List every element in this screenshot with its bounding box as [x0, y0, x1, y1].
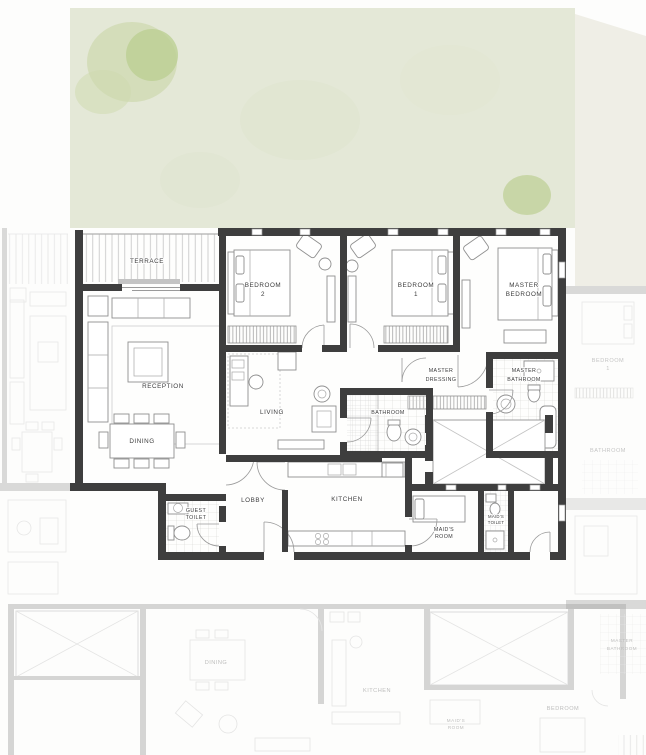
furniture-outline — [30, 292, 66, 306]
wall-segment — [140, 604, 146, 755]
wall-segment — [340, 388, 347, 418]
wall-segment — [550, 552, 566, 560]
toilet — [387, 423, 401, 441]
neighbor-room-label: 1 — [606, 366, 610, 372]
wall-segment — [340, 388, 433, 395]
wall-segment — [162, 494, 226, 501]
tiled-floor — [600, 614, 646, 674]
sofa — [112, 298, 190, 318]
neighbor-unit-right: BEDROOM 1 BATHROOM — [566, 286, 646, 609]
dining-chair — [114, 459, 129, 468]
floor-plan-svg: BEDROOM 1 BATHROOM DINING — [0, 0, 646, 755]
wall-segment — [486, 352, 493, 388]
room-guest-toilet: GUEST TOILET — [166, 501, 219, 552]
garden-patch — [160, 152, 240, 208]
furniture-outline — [584, 526, 608, 556]
wall-segment — [226, 455, 382, 462]
window — [300, 229, 310, 235]
side-table — [278, 352, 296, 370]
pillow — [543, 254, 551, 274]
window — [540, 229, 550, 235]
chair-outline — [196, 630, 209, 638]
wall-segment — [545, 415, 553, 433]
wardrobe — [228, 326, 296, 343]
wall-segment — [219, 506, 226, 522]
chair-outline — [215, 630, 228, 638]
room-label-living: LIVING — [260, 409, 284, 416]
pillow-outline — [624, 324, 632, 338]
table-outline — [22, 432, 52, 472]
sink — [486, 494, 496, 502]
neighbor-room-label: BATHROOM — [590, 448, 626, 454]
room-label-bathroom: BATHROOM — [371, 410, 404, 416]
wall-segment — [425, 445, 433, 461]
main-unit: TERRACE RECEPTION DININ — [70, 228, 566, 560]
shower-floor — [347, 395, 378, 451]
window — [252, 229, 262, 235]
bed-headboard — [228, 252, 234, 314]
room-label-guest-toilet: TOILET — [186, 515, 207, 521]
neighbor-room-label: MAID'S — [447, 718, 465, 723]
window — [530, 485, 540, 490]
counter-outline — [332, 712, 400, 724]
chair-outline — [26, 422, 38, 430]
wall-segment — [219, 546, 226, 560]
bed-outline — [540, 718, 585, 752]
wardrobe-outline — [575, 388, 633, 398]
room-label-reception: RECEPTION — [142, 383, 184, 390]
neighbor-unit-bottom: DINING KITCHEN MAID'S ROOM BEDROOM MASTE… — [8, 604, 646, 755]
fixture-outline — [330, 612, 344, 622]
wall-segment — [566, 498, 646, 510]
side-table — [319, 258, 331, 270]
window — [496, 229, 506, 235]
room-bathroom: BATHROOM — [347, 395, 426, 451]
neighbor-room-label: BEDROOM — [547, 706, 579, 712]
wall-segment — [424, 609, 430, 689]
wall-segment — [488, 352, 566, 359]
tv-cabinet — [312, 406, 336, 432]
garden-patch — [240, 80, 360, 160]
window — [438, 229, 448, 235]
dining-chair — [134, 414, 149, 423]
fridge — [382, 463, 403, 477]
wall-segment — [8, 604, 14, 755]
pillow — [438, 284, 446, 302]
room-label-maids-toilet: TOILET — [488, 520, 505, 525]
dining-chair — [114, 414, 129, 423]
floor-plan-canvas: BEDROOM 1 BATHROOM DINING — [0, 0, 646, 755]
dining-chair — [134, 459, 149, 468]
wall-segment — [282, 490, 288, 552]
fixture-outline — [350, 636, 362, 648]
room-label-master-bathroom: MASTER — [512, 368, 536, 374]
dining-chair — [99, 432, 108, 448]
wall-segment — [219, 228, 226, 454]
wall-segment — [453, 228, 460, 352]
room-label-bedroom1: 1 — [414, 291, 418, 298]
toilet — [174, 526, 190, 540]
bench — [504, 330, 546, 343]
tree-canopy — [75, 70, 131, 114]
furniture-outline — [255, 738, 310, 751]
corner-table — [88, 296, 108, 316]
wall-segment — [340, 228, 347, 352]
room-label-bedroom2: 2 — [261, 291, 265, 298]
wall-segment — [75, 230, 83, 490]
wall-segment — [545, 452, 553, 484]
wall-segment — [425, 472, 433, 484]
window — [446, 485, 456, 490]
tiled-floor — [582, 460, 638, 494]
neighbor-room-label: DINING — [205, 660, 228, 666]
neighbor-room-label: MASTER — [611, 638, 633, 643]
neighbor-terrace-deck — [618, 735, 646, 755]
garden-edge-strip — [575, 14, 646, 286]
room-label-master-bedroom: MASTER — [509, 282, 539, 289]
room-label-maids-room: ROOM — [435, 534, 453, 540]
dining-chair — [176, 432, 185, 448]
neighbor-unit-left — [0, 228, 70, 594]
room-terrace: TERRACE — [75, 234, 226, 284]
wall-segment — [14, 676, 140, 680]
room-label-bedroom2: BEDROOM — [245, 282, 281, 289]
neighbor-room-label: BATHROOM — [607, 646, 637, 651]
dresser — [327, 276, 335, 322]
counter-outline — [332, 640, 346, 706]
toilet-tank — [388, 420, 400, 425]
fixture-outline — [17, 521, 31, 535]
wall-segment — [478, 491, 484, 560]
room-label-maids-toilet: MAID'S — [488, 514, 504, 519]
dining-chair — [154, 414, 169, 423]
console-table — [278, 440, 324, 449]
furniture-outline — [38, 342, 58, 362]
tree-canopy — [126, 29, 178, 81]
chair-outline — [215, 682, 228, 690]
chair-outline — [175, 701, 202, 727]
wall-segment — [70, 483, 166, 491]
dresser — [462, 280, 470, 328]
desk-chair — [249, 375, 263, 389]
room-label-master-dressing: MASTER — [429, 368, 453, 374]
rug-outline — [30, 316, 66, 410]
wall-segment — [424, 685, 574, 690]
room-label-kitchen: KITCHEN — [331, 496, 363, 503]
neighbor-room-label: BEDROOM — [592, 358, 624, 364]
wall-segment — [2, 228, 7, 490]
wall-segment — [425, 415, 433, 433]
sink — [405, 429, 421, 445]
garden-patch — [400, 45, 500, 115]
wall-segment — [226, 345, 302, 352]
wall-segment — [568, 609, 574, 689]
room-label-dining: DINING — [129, 438, 154, 445]
shower — [486, 531, 504, 549]
room-label-master-bathroom: BATHROOM — [507, 377, 540, 383]
room-label-master-dressing: DRESSING — [426, 377, 457, 383]
toilet-tank — [528, 385, 540, 390]
door-arc — [592, 690, 608, 706]
pillow — [236, 256, 244, 274]
room-label-guest-toilet: GUEST — [186, 508, 207, 514]
dresser — [348, 276, 356, 322]
neighbor-room-label: KITCHEN — [363, 688, 391, 694]
window — [498, 485, 506, 490]
dining-chair — [154, 459, 169, 468]
chair-outline — [42, 422, 54, 430]
wall-segment — [508, 491, 514, 560]
bed-headboard — [552, 250, 558, 316]
wall-segment — [158, 552, 264, 560]
pillow — [415, 499, 424, 519]
neighbor-terrace-deck — [8, 234, 68, 284]
chair-outline — [26, 474, 38, 482]
terrace-step — [118, 279, 180, 284]
wardrobe — [384, 326, 448, 343]
toilet-tank — [168, 526, 174, 540]
pillow — [543, 286, 551, 306]
desk — [230, 356, 248, 406]
neighbor-room-label: ROOM — [448, 725, 464, 730]
wall-segment — [405, 484, 566, 491]
tree-canopy — [503, 175, 551, 215]
wall-segment — [378, 345, 456, 352]
window — [559, 505, 565, 521]
window — [388, 229, 398, 235]
wall-segment — [566, 286, 646, 294]
pillow — [236, 284, 244, 302]
wall-segment — [75, 284, 122, 291]
furniture-outline — [10, 382, 24, 424]
chair-outline — [196, 682, 209, 690]
room-maids-toilet: MAID'S TOILET — [484, 491, 508, 552]
window — [559, 262, 565, 278]
fixture-outline — [40, 518, 58, 544]
pillow-outline — [624, 306, 632, 320]
fixture-outline — [348, 612, 360, 622]
furniture-outline — [10, 300, 24, 378]
wall-segment — [486, 451, 566, 458]
room-outline — [8, 562, 58, 594]
side-table — [346, 260, 358, 272]
kitchen-counter — [288, 531, 405, 546]
sofa — [88, 322, 108, 422]
wall-segment — [0, 483, 70, 491]
chair-outline — [219, 715, 237, 733]
room-label-master-bedroom: BEDROOM — [506, 291, 542, 298]
room-label-bedroom1: BEDROOM — [398, 282, 434, 289]
chair-outline — [54, 438, 62, 450]
sink — [497, 395, 515, 413]
room-label-lobby: LOBBY — [241, 497, 265, 504]
chair-outline — [12, 438, 20, 450]
pillow — [438, 256, 446, 274]
wall-segment — [405, 545, 412, 560]
room-label-terrace: TERRACE — [130, 258, 164, 265]
room-label-maids-room: MAID'S — [434, 527, 454, 533]
lounge-chair — [314, 386, 330, 402]
